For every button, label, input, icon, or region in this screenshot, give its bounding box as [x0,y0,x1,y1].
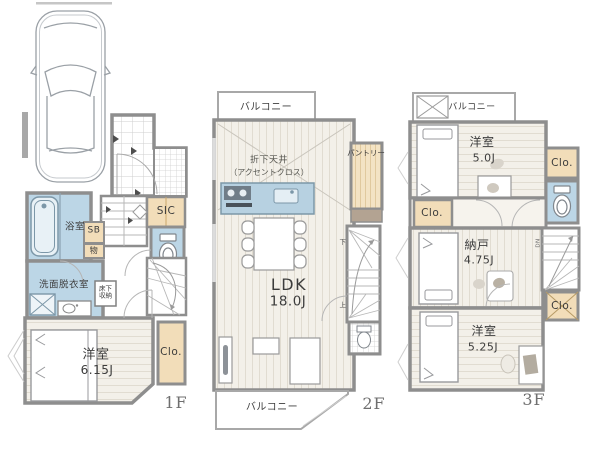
stairs-2f-icon [347,226,380,322]
entrance-porch [154,148,186,196]
parking-wall-segment [22,112,28,158]
ceiling-note-line1: 折下天井 [250,157,288,166]
room-size-storage: 4.75J [464,255,494,266]
floor-1f-drawing [8,2,186,403]
toilet-icon-3f [554,186,571,217]
floor-2f-drawing [212,92,382,429]
stairs-1f-icon [101,196,147,246]
window-2f-a [212,138,216,180]
room-label-mono: 物 [90,247,99,255]
closet3-label-3f: Clo. [551,301,573,312]
pantry-shelf [351,209,382,222]
closet-label-1f: Clo. [160,347,182,358]
room-size-ldk: 18.0J [270,295,307,309]
room-label-bathroom: 浴室 [65,222,85,232]
balcony-label-top-2f: バルコニー [240,103,292,113]
room-label-west-1f: 洋室 [82,349,109,362]
window-chevron-1f [8,330,24,382]
floorplan-drawing [0,0,600,449]
bed-icon-3f-a [417,125,458,197]
vanity-icon [58,301,91,316]
tv-board-icon [219,337,232,383]
room-toilet-2f [349,322,380,354]
bathtub-icon [31,197,58,256]
room-label-sb: SB [88,227,101,236]
bed-icon-3f-b [419,233,458,304]
ceiling-note-line2: （アクセントクロス） [229,169,309,177]
closet2-label-3f: Clo. [421,208,443,219]
balcony-label-3f: バルコニー [448,104,495,113]
winder-stairs-1f-icon [147,258,186,315]
room-label-washroom: 洗面脱衣室 [39,280,89,290]
room-size-west2-3f: 5.25J [468,342,498,353]
closet1-label-3f: Clo. [551,158,573,169]
floor-label-1f: 1F [164,395,187,411]
floor-label-3f: 3F [522,392,545,408]
window-2f-b [212,224,216,282]
washing-machine-icon [30,294,55,315]
stairs-dn-label: DN [536,238,542,247]
room-label-pantry: パントリー [347,149,385,157]
room-label-west2-3f: 洋室 [471,325,496,337]
floor-label-2f: 2F [362,396,385,412]
room-label-sic: SIC [157,206,176,217]
dining-table-icon [242,218,306,270]
stairs-down-label: 下 [340,239,347,246]
room-size-west-1f: 6.15J [81,364,114,376]
car-icon [31,11,110,182]
parking-boundary-line [36,2,112,5]
room-label-storage: 納戸 [464,239,489,251]
kitchen-counter-icon [221,183,314,214]
stairs-up-label: 上 [340,302,347,309]
balcony-label-bottom-2f: バルコニー [246,403,298,413]
room-label-west1-3f: 洋室 [469,136,494,148]
balcony-box-icon [417,96,448,118]
stairs-3f-icon [542,228,579,290]
room-label-underfloor: 床下 収納 [99,286,112,301]
room-size-west1-3f: 5.0J [473,153,496,164]
floorplan-canvas: 浴室 SB 物 SIC 洗面脱衣室 床下 収納 洋室 6.15J Clo. 1F… [0,0,600,449]
room-label-ldk: LDK [271,277,307,293]
window-chevrons-3f [396,152,408,380]
bed-icon-3f-c [420,312,458,382]
